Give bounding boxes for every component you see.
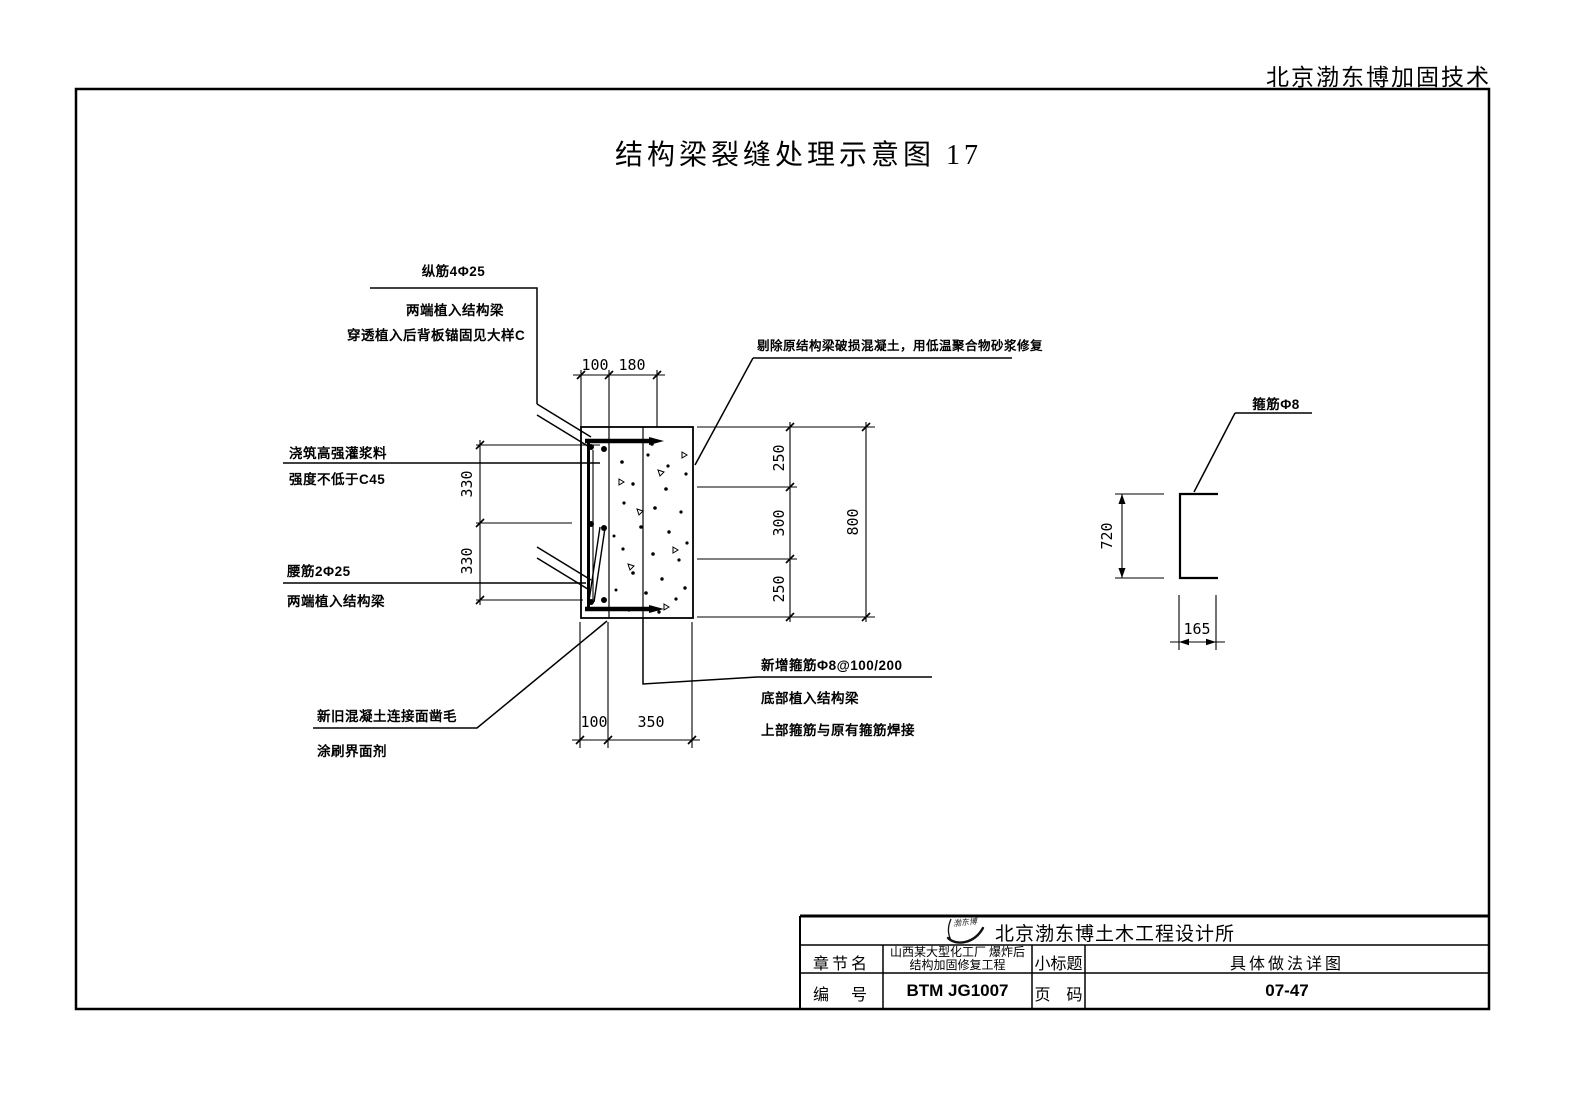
label-new-stirrup-note2: 上部箍筋与原有箍筋焊接 <box>761 719 915 739</box>
dim-right-800: 800 <box>844 500 862 544</box>
dim-right-300: 300 <box>770 501 788 545</box>
label-grout-line2: 强度不低于C45 <box>289 468 385 488</box>
dim-detail-720: 720 <box>1098 514 1116 558</box>
dim-left-330-lower: 330 <box>458 539 476 583</box>
title-block-project-line2: 结构加固修复工程 <box>883 959 1032 971</box>
dim-bottom-350: 350 <box>631 713 671 731</box>
dim-detail-165: 165 <box>1177 620 1217 638</box>
drawing-sheet: { "header": { "company_tag": "北京渤东博加固技术"… <box>0 0 1571 1098</box>
dim-top-180: 180 <box>612 356 652 374</box>
label-longitudinal-bar-note2: 穿透植入后背板锚固见大样C <box>347 324 525 344</box>
title-block-page: 07-47 <box>1085 981 1489 1001</box>
title-block-company: 北京渤东博土木工程设计所 <box>995 919 1235 946</box>
label-roughen-line2: 涂刷界面剂 <box>317 740 387 760</box>
label-repair-note: 剔除原结构梁破损混凝土，用低温聚合物砂浆修复 <box>757 335 1043 354</box>
title-block-number-label: 编 号 <box>800 981 883 1005</box>
sheet-title: 结构梁裂缝处理示意图 17 <box>615 133 982 173</box>
label-waist-bar-note: 两端植入结构梁 <box>287 590 385 610</box>
dim-right-250-bottom: 250 <box>770 567 788 611</box>
label-longitudinal-bar: 纵筋4Φ25 <box>370 260 537 280</box>
header-company-tag: 北京渤东博加固技术 <box>1266 58 1491 92</box>
label-stirrup-detail: 箍筋Φ8 <box>1240 393 1312 413</box>
dim-top-100: 100 <box>575 356 615 374</box>
title-block-project-line1: 山西某大型化工厂 爆炸后 <box>883 946 1032 958</box>
concrete-texture <box>613 442 689 614</box>
label-new-stirrup-note1: 底部植入结构梁 <box>761 687 859 707</box>
title-block-subtitle-label: 小标题 <box>1032 950 1085 974</box>
label-grout-line1: 浇筑高强灌浆料 <box>289 442 387 462</box>
title-block-subtitle: 具体做法详图 <box>1085 950 1489 974</box>
page-border <box>76 89 1489 1009</box>
title-block-chapter-label: 章节名 <box>800 950 883 974</box>
title-block-page-label: 页 码 <box>1032 981 1085 1005</box>
dim-left-330-upper: 330 <box>458 462 476 506</box>
concrete-aggregate <box>619 452 687 610</box>
dim-bottom-100: 100 <box>574 713 614 731</box>
label-new-stirrup: 新增箍筋Φ8@100/200 <box>761 654 903 674</box>
title-block-number: BTM JG1007 <box>883 981 1032 1001</box>
label-longitudinal-bar-note1: 两端植入结构梁 <box>406 299 504 319</box>
dim-right-250-top: 250 <box>770 436 788 480</box>
label-waist-bar: 腰筋2Φ25 <box>287 560 351 580</box>
beam-section <box>581 427 693 618</box>
label-roughen-line1: 新旧混凝土连接面凿毛 <box>317 705 457 725</box>
